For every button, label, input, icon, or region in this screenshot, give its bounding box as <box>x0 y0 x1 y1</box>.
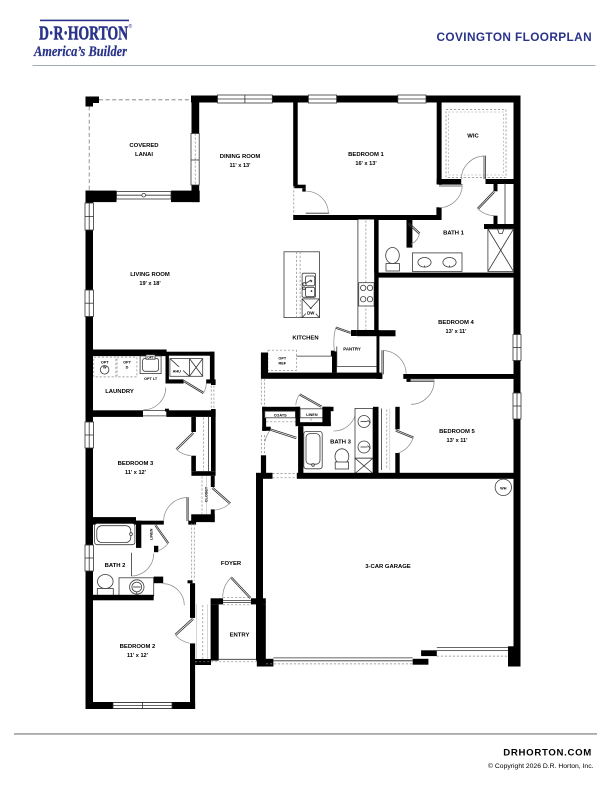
svg-text:LINEN: LINEN <box>149 528 153 540</box>
svg-text:13' x 11': 13' x 11' <box>445 329 467 335</box>
svg-text:COVINGTON FLOORPLAN: COVINGTON FLOORPLAN <box>437 30 593 44</box>
svg-text:D·R·HORTON: D·R·HORTON <box>39 23 128 45</box>
svg-text:OPT: OPT <box>147 355 154 359</box>
svg-text:BATH 1: BATH 1 <box>443 231 465 237</box>
svg-text:BEDROOM 5: BEDROOM 5 <box>439 429 475 435</box>
svg-text:LANAI: LANAI <box>135 152 153 158</box>
svg-text:REF: REF <box>278 362 286 366</box>
svg-text:WH: WH <box>500 486 507 490</box>
svg-text:DW: DW <box>307 310 315 315</box>
svg-text:© Copyright 2026 D.R. Horton,: © Copyright 2026 D.R. Horton, Inc. <box>488 762 594 770</box>
svg-text:LINEN: LINEN <box>306 413 318 417</box>
svg-text:America’s Builder: America’s Builder <box>33 44 127 60</box>
svg-text:BEDROOM 3: BEDROOM 3 <box>118 461 154 467</box>
svg-text:3-CAR GARAGE: 3-CAR GARAGE <box>365 564 411 570</box>
svg-text:D: D <box>126 365 129 369</box>
svg-text:OPT: OPT <box>123 361 131 365</box>
svg-text:16' x 13': 16' x 13' <box>355 161 377 167</box>
svg-text:BEDROOM 2: BEDROOM 2 <box>120 644 156 650</box>
svg-text:BATH 2: BATH 2 <box>105 563 127 569</box>
svg-text:OPT: OPT <box>278 357 286 361</box>
svg-text:OPT LT: OPT LT <box>144 377 158 381</box>
svg-text:FOYER: FOYER <box>221 561 242 567</box>
svg-text:DINING ROOM: DINING ROOM <box>220 154 261 160</box>
svg-text:LIVING ROOM: LIVING ROOM <box>130 272 170 278</box>
svg-text:AHU: AHU <box>173 370 181 374</box>
svg-text:BEDROOM 1: BEDROOM 1 <box>348 152 384 158</box>
svg-text:LAUNDRY: LAUNDRY <box>105 389 134 395</box>
svg-text:WIC: WIC <box>467 134 479 140</box>
svg-text:BATH 3: BATH 3 <box>330 440 352 446</box>
svg-text:11' x 12': 11' x 12' <box>127 653 149 659</box>
svg-text:BEDROOM 4: BEDROOM 4 <box>438 320 474 326</box>
svg-text:®: ® <box>129 23 133 30</box>
svg-text:19' x 18': 19' x 18' <box>139 281 161 287</box>
svg-text:DRHORTON.COM: DRHORTON.COM <box>503 748 592 759</box>
svg-text:COVERED: COVERED <box>129 143 158 149</box>
svg-text:KITCHEN: KITCHEN <box>292 336 318 342</box>
svg-text:OPT: OPT <box>101 361 109 365</box>
svg-text:ENTRY: ENTRY <box>230 633 250 639</box>
svg-text:11' x 12': 11' x 12' <box>125 470 147 476</box>
svg-text:PANTRY: PANTRY <box>343 347 361 352</box>
svg-text:13' x 11': 13' x 11' <box>446 438 468 444</box>
svg-text:COATS: COATS <box>274 414 287 418</box>
svg-text:CLOSET: CLOSET <box>205 486 209 502</box>
svg-text:11' x 13': 11' x 13' <box>229 163 251 169</box>
